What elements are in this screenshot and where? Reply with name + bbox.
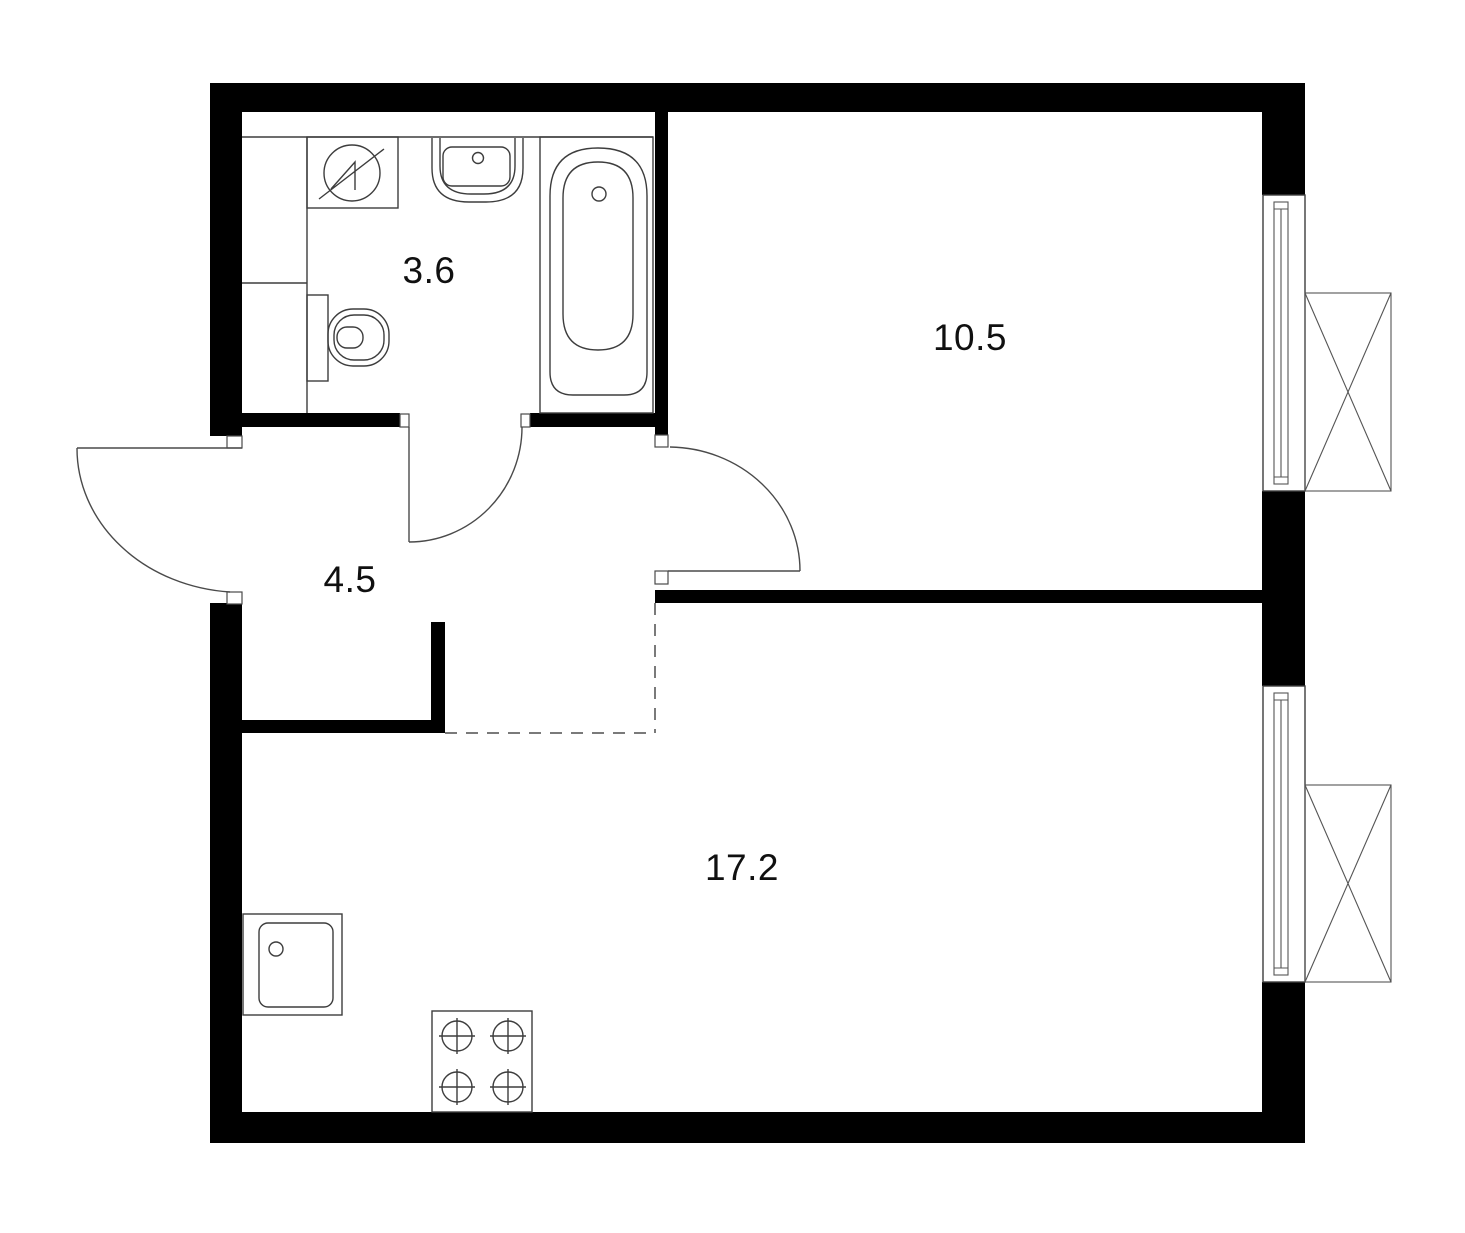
wall-bottom: [210, 1112, 1305, 1143]
washing-machine: [307, 137, 398, 208]
bedroom-door: [668, 447, 800, 571]
floor-plan-svg: 3.6 10.5 4.5 17.2: [0, 0, 1465, 1233]
bathtub-basin: [563, 162, 633, 350]
window-frame: [1263, 686, 1305, 982]
wall-bathroom-south-right: [530, 413, 655, 427]
bathroom-door: [409, 427, 522, 542]
ac-unit-basket-top: [1305, 293, 1391, 491]
kitchen-sink-faucet-hole: [269, 942, 283, 956]
area-label-bedroom: 10.5: [933, 317, 1007, 358]
stove-body: [432, 1011, 532, 1112]
toilet-bowl-inner: [334, 315, 384, 360]
toilet-flush-hole: [337, 327, 363, 348]
entry-door-arc: [77, 448, 230, 592]
kitchen-sink-bowl: [259, 923, 333, 1007]
wall-right-pier-middle: [1262, 491, 1305, 686]
toilet-cistern: [307, 295, 328, 381]
wall-left-upper: [210, 83, 242, 436]
ac-box-cross: [1305, 785, 1391, 982]
kitchen-sink: [243, 914, 342, 1015]
floor-plan: 3.6 10.5 4.5 17.2: [0, 0, 1465, 1233]
wall-hallway-kitchen-stub: [431, 622, 445, 733]
entry-door: [77, 448, 242, 592]
kitchen-fixtures: [243, 914, 532, 1112]
zone-boundary-dashed-line: [445, 603, 655, 733]
door-jambs: [227, 414, 668, 604]
jamb-entry-top: [227, 436, 242, 448]
stove-burner: [490, 1018, 526, 1054]
bathtub-outer-rect: [540, 137, 653, 413]
bathtub: [540, 137, 653, 413]
basin-faucet-hole: [473, 153, 484, 164]
jamb-bedroom-bottom: [655, 571, 668, 584]
area-label-hallway: 4.5: [324, 559, 377, 600]
window-bottom: [1263, 686, 1305, 982]
stove-burner: [490, 1069, 526, 1105]
wall-bathroom-south-left: [242, 413, 400, 427]
ventilation-shaft: [242, 137, 307, 413]
area-label-bathroom: 3.6: [403, 250, 456, 291]
jamb-bathroom-left: [400, 414, 409, 427]
ac-box-cross: [1305, 293, 1391, 491]
wall-left-lower: [210, 603, 242, 1143]
bathroom-door-arc: [409, 427, 522, 542]
wash-basin: [432, 138, 523, 202]
window-frame: [1263, 195, 1305, 491]
stove-burner: [439, 1018, 475, 1054]
window-top: [1263, 195, 1305, 491]
jamb-bathroom-right: [521, 414, 530, 427]
jamb-bedroom-top: [655, 435, 668, 447]
stove: [432, 1011, 532, 1112]
walls: [210, 83, 1305, 1143]
bathtub-drain: [592, 187, 606, 201]
wall-right-pier-bottom: [1262, 982, 1305, 1143]
jamb-entry-bottom: [227, 592, 242, 604]
wall-rooms-divider: [655, 590, 1262, 603]
stove-burner: [439, 1069, 475, 1105]
wall-top: [210, 83, 1305, 112]
wall-right-pier-top: [1262, 112, 1305, 195]
wall-bathroom-bedroom-divider: [655, 112, 668, 435]
area-label-kitchen-living: 17.2: [705, 847, 779, 888]
ac-unit-basket-bottom: [1305, 785, 1391, 982]
wall-hallway-kitchen-h: [242, 720, 445, 733]
kitchen-sink-counter: [243, 914, 342, 1015]
bedroom-door-arc: [670, 447, 800, 571]
toilet: [307, 295, 389, 381]
